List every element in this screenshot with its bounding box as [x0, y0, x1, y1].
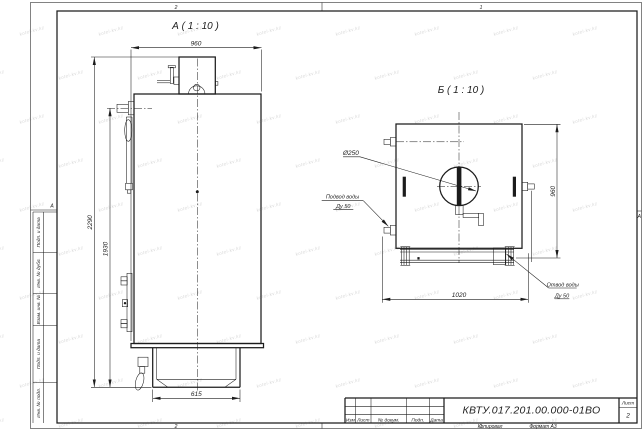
col-list: Лист [356, 417, 369, 423]
format-label: Формат А3 [529, 424, 557, 430]
view-b-title: Б ( 1 : 10 ) [438, 85, 485, 96]
zone-row-letter-left: А [49, 204, 54, 210]
zone-top-left: 2 [174, 5, 178, 11]
zone-row-letter-right: А [637, 214, 642, 220]
view-a: А ( 1 : 10 ) [87, 21, 264, 402]
callout-door-diameter: Ø250 [342, 150, 476, 191]
side-channel [125, 117, 133, 193]
zone-bottom-left: 2 [174, 424, 178, 430]
col-doc: № докум. [378, 417, 399, 423]
view-b: Б ( 1 : 10 ) [322, 85, 579, 303]
hinge-mark-right [513, 177, 516, 197]
strip-label-inv-podl: Инв. № подл. [36, 388, 42, 418]
col-data: Дата [429, 417, 443, 423]
dim-2290-label: 2290 [87, 215, 94, 231]
center-point-mark [196, 190, 199, 193]
col-izm: Изм [346, 417, 356, 423]
outlet-block [493, 248, 505, 265]
base-latch [134, 357, 148, 391]
dim-base-width: 615 [153, 390, 240, 403]
strip-label-podp-data-1: Подп. и дата [36, 217, 42, 247]
base-box [153, 348, 240, 388]
doc-number: КВТУ.017.201.00.000-01ВО [462, 405, 600, 417]
callout-outlet: Отвод воды Ду 50 [507, 254, 579, 299]
sheet-label: Лист [621, 401, 634, 407]
bottom-manifold [400, 247, 515, 266]
dim-1930-label: 1930 [103, 241, 110, 256]
callout-inlet: Подвод воды Ду 50 [322, 195, 389, 227]
view-a-title: А ( 1 : 10 ) [171, 21, 219, 32]
hinge-mark-left [403, 177, 406, 197]
dim-960a-label: 960 [191, 40, 202, 47]
inlet-label-line1: Подвод воды [326, 195, 359, 201]
fitting-inlet [384, 225, 396, 235]
strip-label-inv-dubl: Инв. № дубл. [36, 258, 42, 288]
dim-250-label: Ø250 [342, 150, 359, 157]
door-hinge-hardware [121, 273, 132, 331]
zone-top-right: 1 [480, 5, 483, 11]
outlet-label-line2: Ду 50 [554, 293, 570, 299]
dim-height-body: 1930 [103, 108, 111, 387]
inlet-label-line2: Ду 50 [335, 204, 351, 210]
sheet-frame [31, 3, 642, 429]
col-podp: Подп. [411, 417, 424, 423]
upper-pipe-fitting [107, 102, 152, 115]
dim-height-total: 2290 [87, 57, 179, 387]
drawing-canvas: 2 1 2 1 А А Подп. и дата Инв. № дубл. Вз… [0, 0, 644, 430]
fitting-top-left [384, 138, 464, 146]
damper-handle [157, 66, 218, 86]
dim-615-label: 615 [191, 391, 202, 398]
sheet-number: 2 [625, 413, 630, 420]
outlet-label-line1: Отвод воды [547, 282, 579, 288]
dim-960b-label: 960 [550, 185, 557, 196]
copied-label: Копировал [478, 424, 503, 430]
drawing-sheet: kotel-kv.kzkotel-kv.kzkotel-kv.kzkotel-k… [0, 0, 644, 430]
fitting-right [522, 182, 534, 262]
lifting-eye [189, 84, 205, 94]
stamp-strip: Подп. и дата Инв. № дубл. Взам. инв. № П… [33, 212, 57, 423]
strip-label-podp-data-2: Подп. и дата [36, 339, 42, 369]
door-circle [437, 167, 483, 226]
strip-label-vzam-inv: Взам. инв. № [36, 295, 42, 325]
dim-height-b: 960 [516, 124, 561, 258]
dim-1020-label: 1020 [452, 292, 467, 299]
title-block: Изм Лист № докум. Подп. Дата КВТУ.017.20… [345, 398, 637, 430]
